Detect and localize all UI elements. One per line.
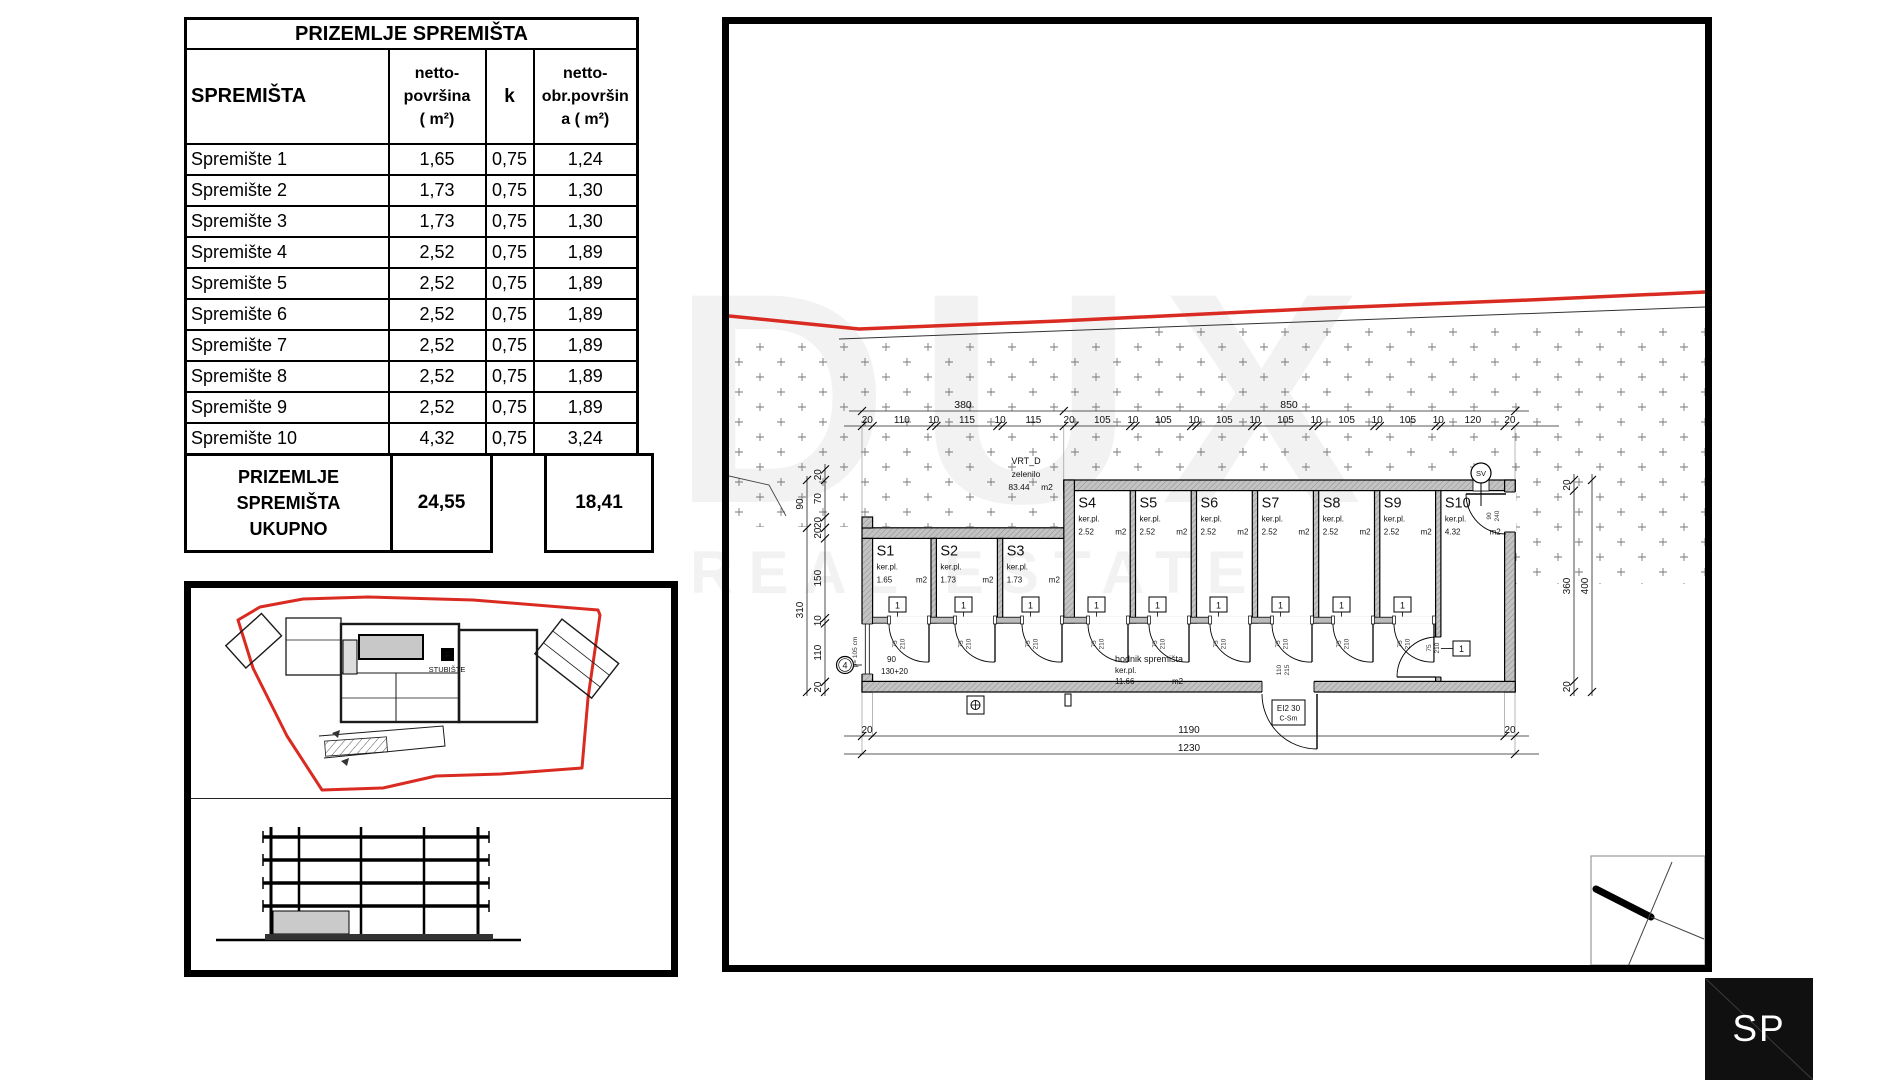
room-area: 2.52 xyxy=(1323,528,1339,537)
storage-area-table: PRIZEMLJE SPREMIŠTA SPREMIŠTA netto- pov… xyxy=(184,17,669,553)
door-opening xyxy=(1022,617,1062,624)
door-opening xyxy=(1149,617,1189,624)
table-row: Spremište 62,520,751,89 xyxy=(186,299,638,330)
elevation-base-slab xyxy=(265,934,493,940)
col-header-obr: netto- obr.površin a ( m²) xyxy=(534,49,638,144)
dim-top-value: 105 xyxy=(1399,415,1416,426)
row-value-cell: 3,24 xyxy=(534,423,638,455)
table-row: Spremište 92,520,751,89 xyxy=(186,392,638,423)
door-opening xyxy=(1394,617,1434,624)
room-floor-finish: ker.pl. xyxy=(877,562,898,571)
room-area: 2.52 xyxy=(1384,528,1400,537)
room-floor-finish: ker.pl. xyxy=(1140,515,1161,524)
room-area-unit: m2 xyxy=(1115,528,1127,537)
dim-top-value: 105 xyxy=(1338,415,1355,426)
svg-text:m2: m2 xyxy=(1172,677,1184,686)
dim-left-value: 20 xyxy=(813,517,824,529)
svg-text:240: 240 xyxy=(1494,510,1501,521)
row-value-cell: 2,52 xyxy=(389,392,486,423)
table-row: Spremište 31,730,751,30 xyxy=(186,206,638,237)
storage-room-S5: S5ker.pl.2.52m2175210 xyxy=(1140,496,1191,662)
door-width: 75 xyxy=(1397,640,1404,648)
dim-top-value: 10 xyxy=(1188,415,1200,426)
floor-plan-drawing: S1ker.pl.1.65m2175210S2ker.pl.1.73m21752… xyxy=(729,24,1705,965)
dim-top-value: 120 xyxy=(1464,415,1481,426)
svg-text:130+20: 130+20 xyxy=(881,667,908,676)
door-height: 210 xyxy=(1344,638,1351,649)
staircase-icon-letter: F xyxy=(445,651,450,660)
north-arrow-box xyxy=(1591,856,1705,965)
storage-room-S9: S9ker.pl.2.52m2175210 xyxy=(1384,496,1436,662)
dim-top-value: 20 xyxy=(1064,415,1076,426)
dim-right-value: 20 xyxy=(1562,681,1573,693)
svg-text:hodnik spremišta: hodnik spremišta xyxy=(1115,654,1183,664)
room-area-unit: m2 xyxy=(1421,528,1433,537)
total-obr-value: 18,41 xyxy=(544,453,654,553)
room-area: 2.52 xyxy=(1140,528,1156,537)
row-name-cell: Spremište 2 xyxy=(186,175,389,206)
svg-text:zelenilo: zelenilo xyxy=(1012,469,1041,479)
row-value-cell: 0,75 xyxy=(486,237,534,268)
dim-top-value: 105 xyxy=(1094,415,1111,426)
svg-text:20: 20 xyxy=(1504,725,1516,736)
row-value-cell: 1,73 xyxy=(389,175,486,206)
row-value-cell: 2,52 xyxy=(389,268,486,299)
room-floor-finish: ker.pl. xyxy=(940,562,961,571)
storage-room-S1: S1ker.pl.1.65m2175210 xyxy=(877,543,931,662)
dim-right-value: 360 xyxy=(1562,577,1573,594)
dim-top-value: 105 xyxy=(1216,415,1233,426)
row-name-cell: Spremište 1 xyxy=(186,144,389,175)
svg-text:SV: SV xyxy=(1476,469,1486,478)
table-row: Spremište 42,520,751,89 xyxy=(186,237,638,268)
site-plan-drawing: F STUBIŠTE xyxy=(191,588,671,793)
row-value-cell: 4,32 xyxy=(389,423,486,455)
row-name-cell: Spremište 7 xyxy=(186,330,389,361)
highlighted-storage-area xyxy=(359,635,423,659)
row-name-cell: Spremište 9 xyxy=(186,392,389,423)
door-height: 210 xyxy=(1033,638,1040,649)
site-and-elevation-box: F STUBIŠTE xyxy=(184,581,678,977)
room-floor-finish: ker.pl. xyxy=(1384,515,1405,524)
elevation-structure xyxy=(216,827,521,940)
dim-top-value: 10 xyxy=(1311,415,1323,426)
door-width: 75 xyxy=(892,640,899,648)
door-width: 75 xyxy=(1275,640,1282,648)
room-id: S2 xyxy=(940,543,958,559)
room-id: S5 xyxy=(1140,496,1158,512)
table-total-row: PRIZEMLJE SPREMIŠTA UKUPNO 24,55 18,41 xyxy=(184,453,669,553)
dim-right-value: 20 xyxy=(1562,479,1573,491)
storage-room-S2: S2ker.pl.1.73m2175210 xyxy=(940,543,996,662)
door-tag: 1 xyxy=(1339,601,1344,611)
room-area: 2.52 xyxy=(1078,528,1094,537)
door-width: 75 xyxy=(958,640,965,648)
architectural-drawing-page: { "table": { "title": "PRIZEMLJE SPREMIŠ… xyxy=(0,0,1898,1080)
dimension-text-bottom: 20 1190 20 1230 xyxy=(861,725,1516,754)
dim-top-value: 10 xyxy=(1249,415,1261,426)
door-height: 210 xyxy=(1405,638,1412,649)
door-width: 75 xyxy=(1152,640,1159,648)
row-value-cell: 1,30 xyxy=(534,175,638,206)
row-name-cell: Spremište 6 xyxy=(186,299,389,330)
door-tag: 1 xyxy=(1094,601,1099,611)
dim-top-value: 20 xyxy=(862,415,874,426)
door-opening xyxy=(1210,617,1250,624)
svg-text:4: 4 xyxy=(842,661,847,671)
svg-text:1190: 1190 xyxy=(1178,725,1200,736)
door-opening xyxy=(1272,617,1312,624)
door-width: 75 xyxy=(1213,640,1220,648)
room-floor-finish: ker.pl. xyxy=(1007,562,1028,571)
dim-left-value: 20 xyxy=(813,681,824,693)
table-title: PRIZEMLJE SPREMIŠTA xyxy=(186,19,638,50)
door-tag: 1 xyxy=(1400,601,1405,611)
storage-room-S4: S4ker.pl.2.52m2175210 xyxy=(1078,496,1129,662)
row-value-cell: 2,52 xyxy=(389,299,486,330)
parcel-boundary-red xyxy=(238,597,600,790)
fixtures xyxy=(967,694,1071,714)
dim-left-value: 10 xyxy=(813,615,824,627)
sp-logo-text: SP xyxy=(1732,1008,1785,1050)
room-area: 4.32 xyxy=(1445,528,1461,537)
room-area-unit: m2 xyxy=(1298,528,1310,537)
col-header-k: k xyxy=(486,49,534,144)
row-value-cell: 0,75 xyxy=(486,206,534,237)
door-tag: 1 xyxy=(1216,601,1221,611)
row-name-cell: Spremište 3 xyxy=(186,206,389,237)
room-area-unit: m2 xyxy=(1490,528,1502,537)
room-floor-finish: ker.pl. xyxy=(1201,515,1222,524)
row-value-cell: 2,52 xyxy=(389,361,486,392)
door-height: 210 xyxy=(966,638,973,649)
row-value-cell: 1,89 xyxy=(534,392,638,423)
room-area: 1.73 xyxy=(1007,575,1023,584)
room-area-unit: m2 xyxy=(1176,528,1188,537)
svg-text:850: 850 xyxy=(1280,399,1298,411)
svg-text:210: 210 xyxy=(1434,642,1441,653)
room-id: S1 xyxy=(877,543,895,559)
room-area-unit: m2 xyxy=(1049,575,1061,584)
terrain-boundary-red xyxy=(729,292,1705,329)
row-name-cell: Spremište 4 xyxy=(186,237,389,268)
elevation-drawing xyxy=(191,799,671,973)
row-name-cell: Spremište 10 xyxy=(186,423,389,455)
row-value-cell: 1,89 xyxy=(534,237,638,268)
svg-text:EI2 30: EI2 30 xyxy=(1277,704,1301,713)
room-id: S4 xyxy=(1078,496,1096,512)
svg-text:90: 90 xyxy=(1486,512,1493,520)
room-area-unit: m2 xyxy=(982,575,994,584)
room-area: 2.52 xyxy=(1262,528,1278,537)
dimension-right-outer: 400 xyxy=(1580,577,1591,594)
svg-text:VRT_D: VRT_D xyxy=(1011,456,1041,466)
svg-text:20: 20 xyxy=(861,725,873,736)
door-height: 210 xyxy=(1099,638,1106,649)
row-value-cell: 0,75 xyxy=(486,268,534,299)
dim-left-outer: 310 xyxy=(795,601,806,618)
room-id: S7 xyxy=(1262,496,1280,512)
total-label: PRIZEMLJE SPREMIŠTA UKUPNO xyxy=(184,453,393,553)
room-area-unit: m2 xyxy=(1237,528,1249,537)
dim-left-value: 150 xyxy=(813,569,824,586)
dim-top-value: 105 xyxy=(1277,415,1294,426)
room-id: S3 xyxy=(1007,543,1025,559)
staircase-label: STUBIŠTE xyxy=(429,665,466,674)
door-tag: 1 xyxy=(1028,601,1033,611)
room-area: 1.65 xyxy=(877,575,893,584)
row-name-cell: Spremište 8 xyxy=(186,361,389,392)
table-row: Spremište 82,520,751,89 xyxy=(186,361,638,392)
dim-top-value: 10 xyxy=(995,415,1007,426)
row-value-cell: 0,75 xyxy=(486,361,534,392)
sp-logo: SP xyxy=(1705,978,1813,1080)
storage-annex xyxy=(343,640,357,674)
row-name-cell: Spremište 5 xyxy=(186,268,389,299)
door-height: 210 xyxy=(1283,638,1290,649)
greenery-hatch xyxy=(729,324,1705,584)
svg-text:ker.pl.: ker.pl. xyxy=(1115,666,1136,675)
svg-text:110: 110 xyxy=(1276,664,1283,675)
row-value-cell: 2,52 xyxy=(389,237,486,268)
door-tag: 1 xyxy=(961,601,966,611)
row-value-cell: 1,89 xyxy=(534,299,638,330)
door-height: 210 xyxy=(1221,638,1228,649)
table-row: Spremište 52,520,751,89 xyxy=(186,268,638,299)
door-tag: 1 xyxy=(895,601,900,611)
total-k-gap xyxy=(493,453,544,553)
storage-room-S3: S3ker.pl.1.73m2175210 xyxy=(1007,543,1064,662)
svg-text:C-Sm: C-Sm xyxy=(1280,716,1298,723)
door-tag: 1 xyxy=(1155,601,1160,611)
door-opening xyxy=(1333,617,1373,624)
door-width: 75 xyxy=(1025,640,1032,648)
svg-text:215: 215 xyxy=(1284,664,1291,675)
row-value-cell: 0,75 xyxy=(486,175,534,206)
room-area-unit: m2 xyxy=(916,575,928,584)
svg-text:p= 105 cm: p= 105 cm xyxy=(852,637,859,668)
dim-top-value: 10 xyxy=(928,415,940,426)
door-height: 210 xyxy=(1160,638,1167,649)
svg-text:75: 75 xyxy=(1426,644,1433,652)
svg-text:1: 1 xyxy=(1459,644,1464,654)
row-value-cell: 1,30 xyxy=(534,206,638,237)
dim-left-value: 70 xyxy=(813,493,824,505)
s10-corridor-door-tag: 1 75 210 xyxy=(1426,641,1470,656)
dim-left-outer: 90 xyxy=(795,498,806,510)
storage-room-S8: S8ker.pl.2.52m2175210 xyxy=(1323,496,1375,662)
dim-left-value: 110 xyxy=(813,644,824,660)
room-id: S9 xyxy=(1384,496,1402,512)
table-row: Spremište 11,650,751,24 xyxy=(186,144,638,175)
storage-room-S6: S6ker.pl.2.52m2175210 xyxy=(1201,496,1252,662)
dim-left-value: 20 xyxy=(813,527,824,539)
door-opening xyxy=(1088,617,1128,624)
table-row: Spremište 21,730,751,30 xyxy=(186,175,638,206)
room-floor-finish: ker.pl. xyxy=(1445,515,1466,524)
room-area-unit: m2 xyxy=(1360,528,1372,537)
door-width: 75 xyxy=(1091,640,1098,648)
storage-table-body: Spremište 11,650,751,24Spremište 21,730,… xyxy=(186,144,638,455)
row-value-cell: 0,75 xyxy=(486,299,534,330)
svg-text:11.66: 11.66 xyxy=(1115,677,1135,686)
row-value-cell: 2,52 xyxy=(389,330,486,361)
room-area: 2.52 xyxy=(1201,528,1217,537)
row-value-cell: 1,65 xyxy=(389,144,486,175)
row-value-cell: 0,75 xyxy=(486,330,534,361)
col-header-netto: netto- površina ( m²) xyxy=(389,49,486,144)
room-id: S6 xyxy=(1201,496,1219,512)
svg-text:1230: 1230 xyxy=(1178,743,1201,754)
door-tag: 1 xyxy=(1278,601,1283,611)
floor-plan-frame: S1ker.pl.1.65m2175210S2ker.pl.1.73m21752… xyxy=(722,17,1712,972)
dim-top-value: 105 xyxy=(1155,415,1172,426)
table-row: Spremište 104,320,753,24 xyxy=(186,423,638,455)
room-id: S8 xyxy=(1323,496,1341,512)
row-value-cell: 1,89 xyxy=(534,361,638,392)
elevation-highlight-ground-floor xyxy=(273,911,349,934)
svg-text:83.44: 83.44 xyxy=(1008,482,1030,492)
dim-top-value: 115 xyxy=(1025,415,1041,426)
room-area: 1.73 xyxy=(940,575,956,584)
total-netto-value: 24,55 xyxy=(390,453,493,553)
dim-left-value: 20 xyxy=(813,469,824,481)
dim-top-value: 115 xyxy=(959,415,975,426)
row-value-cell: 0,75 xyxy=(486,423,534,455)
row-value-cell: 1,89 xyxy=(534,268,638,299)
row-value-cell: 1,73 xyxy=(389,206,486,237)
row-value-cell: 1,89 xyxy=(534,330,638,361)
room-floor-finish: ker.pl. xyxy=(1262,515,1283,524)
dim-top-value: 10 xyxy=(1372,415,1384,426)
svg-text:m2: m2 xyxy=(1041,482,1053,492)
row-value-cell: 0,75 xyxy=(486,144,534,175)
svg-text:90: 90 xyxy=(887,655,896,664)
dim-top-value: 10 xyxy=(1127,415,1139,426)
door-opening xyxy=(955,617,995,624)
door-opening xyxy=(889,617,929,624)
dim-top-value: 20 xyxy=(1504,415,1516,426)
room-floor-finish: ker.pl. xyxy=(1078,515,1099,524)
door-height: 210 xyxy=(900,638,907,649)
room-floor-finish: ker.pl. xyxy=(1323,515,1344,524)
storage-room-S7: S7ker.pl.2.52m2175210 xyxy=(1262,496,1314,662)
door-width: 75 xyxy=(1336,640,1343,648)
row-value-cell: 1,24 xyxy=(534,144,638,175)
col-header-name: SPREMIŠTA xyxy=(186,49,389,144)
dim-top-value: 10 xyxy=(1433,415,1445,426)
svg-text:380: 380 xyxy=(954,399,972,411)
exit-door-label: EI2 30 C-Sm 110 215 xyxy=(1272,664,1305,725)
dim-top-value: 110 xyxy=(894,415,910,426)
row-value-cell: 0,75 xyxy=(486,392,534,423)
table-row: Spremište 72,520,751,89 xyxy=(186,330,638,361)
